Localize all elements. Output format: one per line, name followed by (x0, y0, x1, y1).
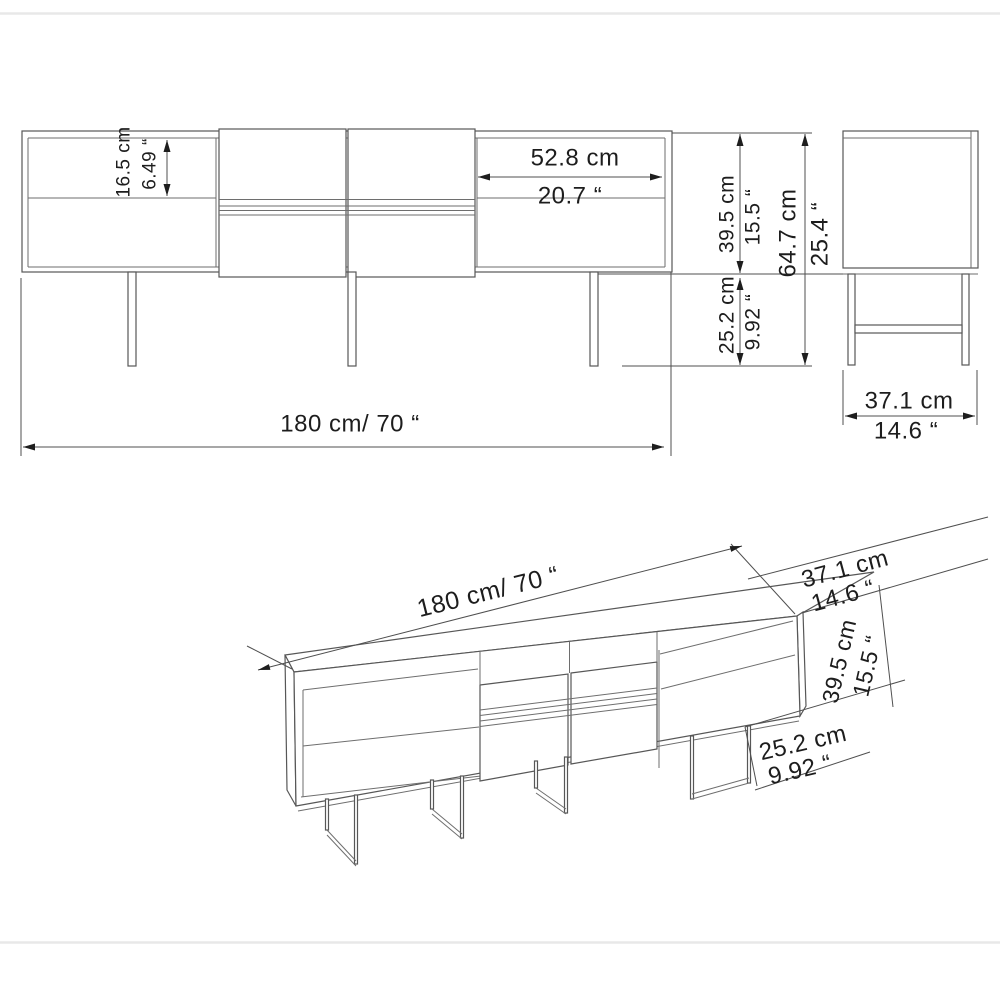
dim-label-body-height-cm: 39.5 cm (716, 175, 739, 253)
iso-leg-front (355, 795, 358, 864)
iso-leg-runner (432, 814, 462, 839)
side-leg-back (962, 274, 969, 365)
dim-label-inner-width-in: 20.7 “ (538, 183, 602, 210)
front-leg-1 (128, 272, 136, 366)
dim-label-depth-cm: 37.1 cm (865, 388, 954, 415)
iso-leg-back (431, 780, 434, 809)
dim-label-leg-height-cm: 25.2 cm (716, 276, 739, 354)
arrowhead (730, 546, 742, 552)
dim-label-depth-in: 14.6 “ (874, 418, 938, 445)
side-body (843, 131, 978, 268)
iso-leg-runner (327, 830, 356, 861)
iso-leg-back (535, 761, 538, 788)
arrowhead (845, 413, 857, 420)
arrowhead (963, 413, 975, 420)
dim-label-shelf-cm: 16.5 cm (114, 126, 135, 197)
dim-label-total-width: 180 cm/ 70 “ (280, 411, 419, 438)
iso-leg-runner (536, 788, 566, 809)
arrowhead (802, 134, 809, 146)
iso-leg-runner (536, 793, 566, 814)
iso-leg-back (326, 799, 329, 830)
iso-leg-runner (432, 809, 462, 834)
perspective-view: 180 cm/ 70 “ 37.1 cm 14.6 “ 39.5 cm 15.5… (247, 517, 988, 866)
iso-leg-front (748, 726, 751, 783)
front-leg-2 (348, 272, 356, 366)
iso-leg-runner (692, 783, 749, 799)
iso-leg-back (691, 736, 694, 799)
iso-leg-front (461, 776, 464, 838)
dim-label-inner-width-cm: 52.8 cm (531, 145, 620, 172)
front-leg-3 (590, 272, 598, 366)
technical-drawing-canvas: 16.5 cm 6.49 “ 52.8 cm 20.7 “ 39.5 cm 15… (0, 0, 1000, 1000)
front-door-1 (219, 129, 346, 277)
iso-leg-runner (327, 835, 356, 866)
dim-label-body-height-in: 15.5 “ (742, 189, 765, 246)
dim-label-total-height-cm: 64.7 cm (775, 189, 802, 278)
arrowhead (258, 664, 270, 670)
side-leg-stretcher (855, 325, 962, 333)
front-door-2 (348, 129, 475, 277)
iso-leg-runner (692, 778, 749, 794)
iso-door-2 (571, 662, 657, 764)
iso-leg-front (565, 757, 568, 813)
iso-leg-assembly-2 (431, 776, 464, 839)
iso-door-1 (480, 674, 568, 781)
arrowhead (737, 261, 744, 273)
arrowhead (23, 444, 35, 451)
arrowhead (737, 134, 744, 146)
dim-label-shelf-in: 6.49 “ (140, 138, 161, 190)
dim-label-leg-height-in: 9.92 “ (742, 294, 765, 351)
iso-label-total-width: 180 cm/ 70 “ (414, 561, 561, 623)
iso-leg-assembly-4 (691, 726, 751, 799)
dim-label-total-height-in: 25.4 “ (807, 202, 834, 266)
arrowhead (652, 444, 664, 451)
arrowhead (802, 353, 809, 365)
side-leg-front (848, 274, 855, 365)
side-view: 37.1 cm 14.6 “ (843, 131, 978, 445)
